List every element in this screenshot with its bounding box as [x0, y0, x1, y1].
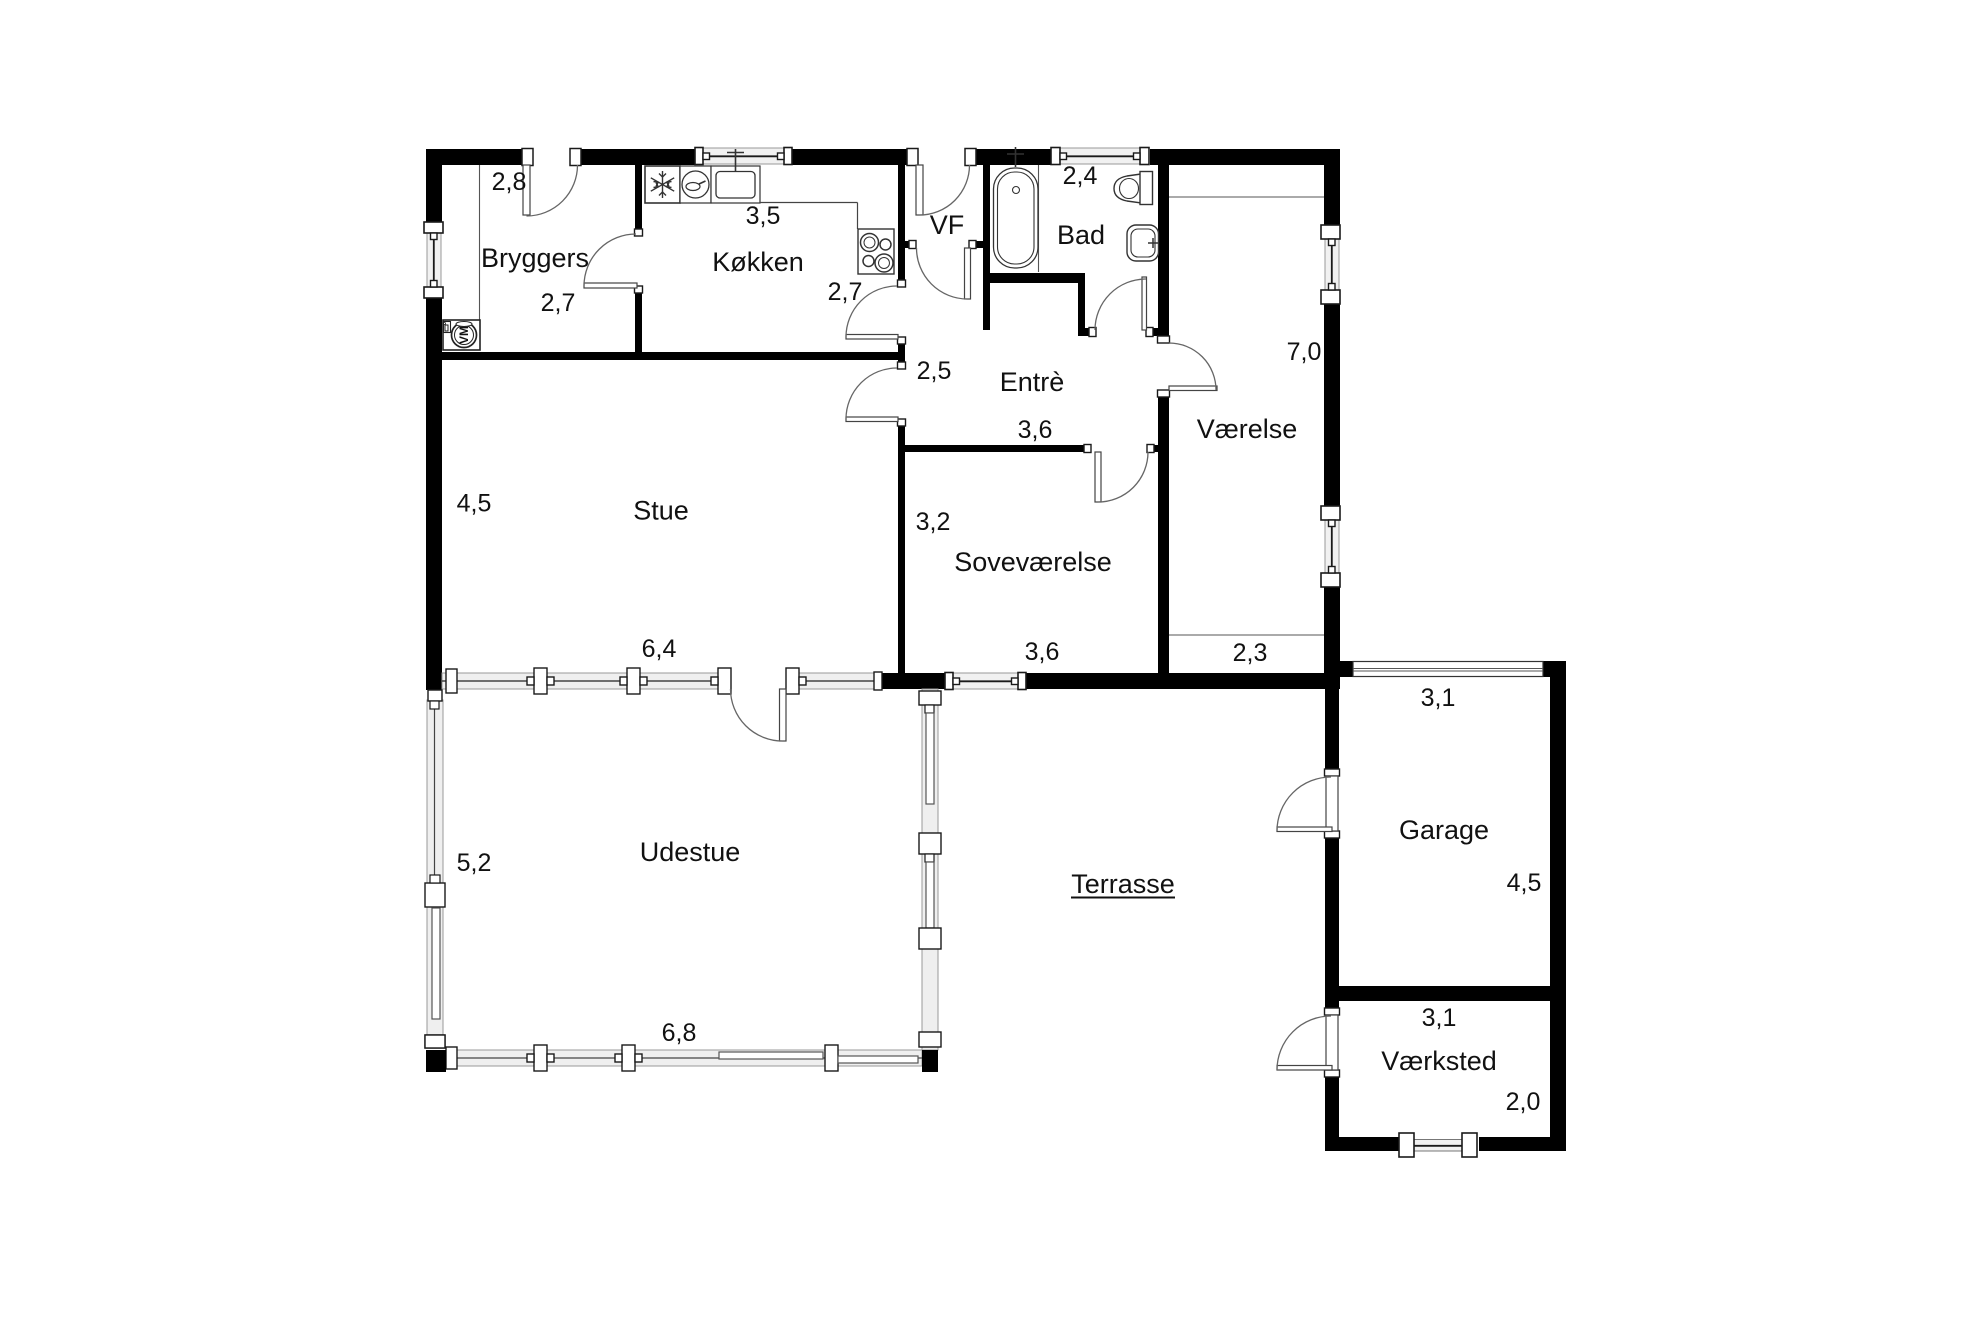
svg-text:6,8: 6,8: [662, 1019, 697, 1047]
svg-text:2,4: 2,4: [1063, 162, 1098, 190]
svg-text:Garage: Garage: [1399, 815, 1489, 845]
svg-text:Værelse: Værelse: [1197, 414, 1298, 444]
svg-text:2,5: 2,5: [917, 357, 952, 385]
svg-text:4,5: 4,5: [457, 490, 492, 518]
svg-text:5,2: 5,2: [457, 849, 492, 877]
svg-text:Bryggers: Bryggers: [481, 243, 589, 273]
svg-text:Udestue: Udestue: [640, 837, 741, 867]
svg-text:3,6: 3,6: [1018, 416, 1053, 444]
svg-text:Stue: Stue: [633, 496, 689, 526]
svg-text:2,7: 2,7: [828, 278, 863, 306]
svg-text:Soveværelse: Soveværelse: [954, 547, 1112, 577]
svg-text:3,2: 3,2: [916, 508, 951, 536]
svg-text:4,5: 4,5: [1507, 869, 1542, 897]
svg-text:3,6: 3,6: [1025, 638, 1060, 666]
svg-text:2,7: 2,7: [541, 289, 576, 317]
svg-text:Køkken: Køkken: [712, 247, 804, 277]
svg-text:VF: VF: [930, 210, 965, 240]
svg-text:3,1: 3,1: [1422, 1004, 1457, 1032]
svg-text:VM: VM: [457, 326, 471, 344]
svg-text:Bad: Bad: [1057, 220, 1105, 250]
svg-text:2,0: 2,0: [1506, 1088, 1541, 1116]
svg-text:6,4: 6,4: [642, 635, 677, 663]
svg-text:Entrè: Entrè: [1000, 367, 1065, 397]
svg-text:Værksted: Værksted: [1381, 1046, 1497, 1076]
svg-text:3,5: 3,5: [746, 202, 781, 230]
svg-text:Terrasse: Terrasse: [1071, 869, 1175, 899]
svg-text:7,0: 7,0: [1287, 338, 1322, 366]
svg-text:2,8: 2,8: [492, 168, 527, 196]
svg-text:2,3: 2,3: [1233, 639, 1268, 667]
svg-text:3,1: 3,1: [1421, 684, 1456, 712]
